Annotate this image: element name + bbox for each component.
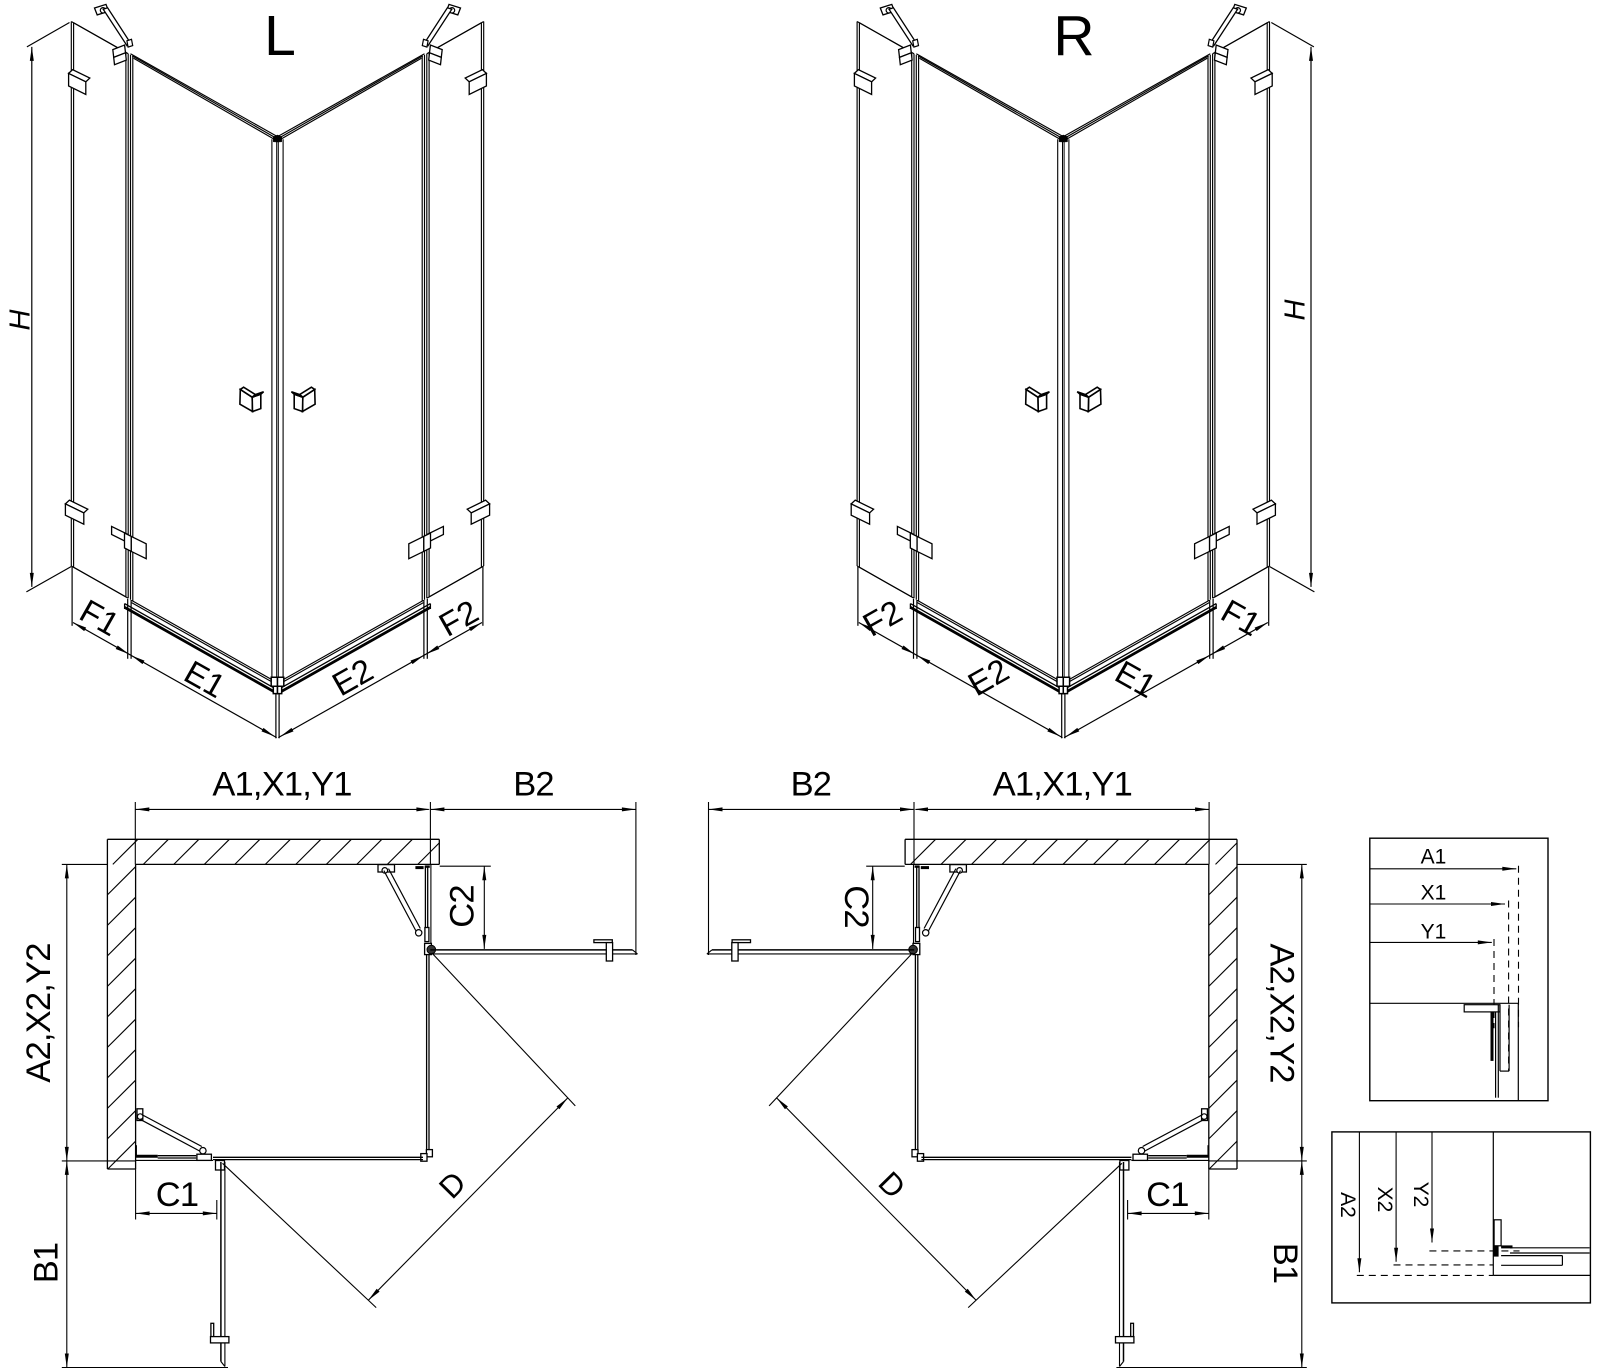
svg-text:B2: B2 (791, 765, 832, 803)
svg-text:B1: B1 (28, 1243, 66, 1284)
svg-text:H: H (5, 309, 37, 330)
svg-text:A1: A1 (1421, 846, 1447, 869)
svg-text:C1: C1 (1146, 1176, 1189, 1214)
svg-text:X1: X1 (1421, 882, 1447, 905)
svg-text:R: R (1053, 4, 1094, 68)
svg-text:L: L (264, 4, 296, 68)
svg-text:H: H (1280, 299, 1312, 320)
svg-text:C2: C2 (837, 885, 875, 928)
svg-text:A2,X2,Y2: A2,X2,Y2 (1262, 943, 1300, 1082)
svg-text:A2: A2 (1336, 1192, 1359, 1218)
svg-text:A1,X1,Y1: A1,X1,Y1 (212, 765, 351, 803)
svg-text:B2: B2 (513, 765, 554, 803)
svg-text:A2,X2,Y2: A2,X2,Y2 (20, 943, 58, 1082)
svg-text:C1: C1 (156, 1176, 199, 1214)
svg-text:Y2: Y2 (1409, 1182, 1432, 1208)
svg-text:X2: X2 (1373, 1187, 1396, 1213)
svg-text:C2: C2 (444, 885, 482, 928)
svg-text:B1: B1 (1266, 1243, 1304, 1284)
svg-text:A1,X1,Y1: A1,X1,Y1 (993, 765, 1132, 803)
svg-text:Y1: Y1 (1421, 920, 1447, 943)
